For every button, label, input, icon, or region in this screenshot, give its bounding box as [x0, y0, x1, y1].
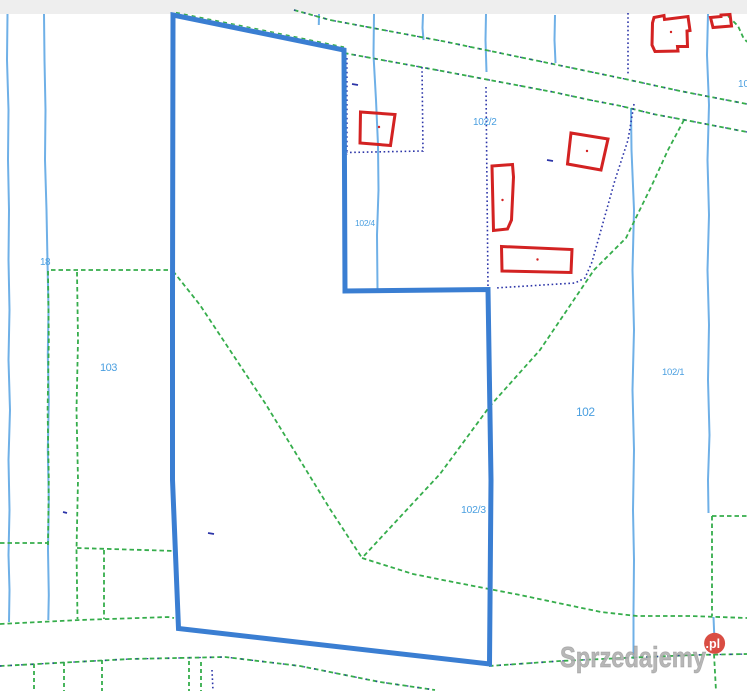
svg-text:102: 102 — [576, 405, 595, 419]
svg-text:102/1: 102/1 — [662, 367, 684, 378]
svg-text:102/2: 102/2 — [473, 117, 497, 128]
svg-text:102/3: 102/3 — [461, 504, 486, 516]
svg-text:Sprzedajemy: Sprzedajemy — [560, 642, 706, 674]
svg-text:10: 10 — [738, 79, 747, 90]
svg-text:18: 18 — [40, 257, 51, 268]
svg-text:.pl: .pl — [706, 637, 721, 651]
svg-text:102/4: 102/4 — [355, 218, 375, 228]
svg-text:103: 103 — [100, 362, 117, 374]
